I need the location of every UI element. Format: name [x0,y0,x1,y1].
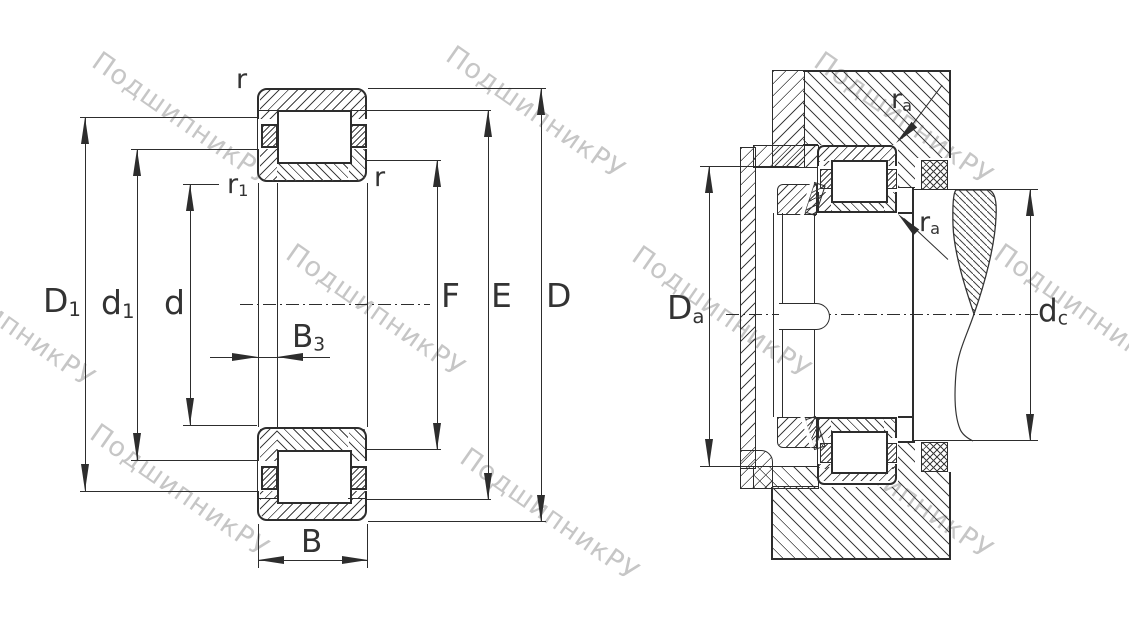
bore-face-line-offset [277,183,279,427]
dim-line-dc [1030,189,1031,441]
dim-label-B: B [301,527,322,560]
shaft-seat-edge [898,416,913,418]
dim-label-Da: Da [667,291,705,327]
ext-line-D-bottom [368,521,546,522]
dim-arrow [484,473,492,500]
ext-line-Da-bottom [700,466,798,467]
flange-edge [348,498,366,499]
bore-face-line [773,213,775,417]
cover-wall [740,147,756,469]
roller [831,160,888,203]
cage-section [350,124,367,148]
flange-edge [259,498,277,499]
radius-label-ra-top: ra [891,86,912,114]
shaft-section-hatch [953,190,996,314]
dim-arrow [81,117,89,144]
dim-label-dc: dc [1038,296,1068,329]
dim-arrow [1026,189,1034,216]
ext-line-dc-bottom [913,440,1038,441]
dim-line-d1 [137,149,138,460]
dim-label-D1: D1 [43,284,81,320]
dim-arrow [186,184,194,211]
ext-line-D-top [368,88,546,89]
housing-bottom-edge [772,558,951,560]
outer-ring-hatch [819,147,896,161]
shaft-end-feature [779,303,830,330]
dim-label-d1: d1 [101,286,135,322]
housing-top-edge [803,70,951,72]
watermark: ПодшипникРУ [454,442,644,588]
dim-label-D: D [546,279,571,315]
ext-line-d1-top [131,149,257,150]
dim-arrow [705,439,713,466]
ext-line-d-bottom [183,425,257,426]
cage-section [261,124,278,148]
shaft-break-section [945,183,1003,445]
cage-section [261,466,278,490]
outer-ring-top-hatch [260,90,365,111]
dim-arrow [133,433,141,460]
dim-arrow [705,166,713,193]
roller [831,431,888,474]
dim-arrow [433,423,441,450]
radius-label-r1: r1 [227,171,248,199]
radius-label-r-side: r [374,164,385,192]
dim-label-E: E [491,279,512,315]
dim-arrow [433,160,441,187]
watermark: ПодшипникРУ [440,40,630,186]
dim-label-B3: B3 [292,322,325,355]
dim-label-F: F [441,279,460,315]
ext-line-D1-top [80,117,257,118]
leader-arrow [895,211,919,235]
dim-arrow [81,464,89,491]
bore-face-line [258,183,260,427]
dim-arrow [258,556,284,564]
housing-bore-edge [772,486,818,488]
roller [277,450,352,504]
cage-section [350,466,367,490]
inner-ring-bottom-hatch [277,429,348,450]
snap-ring [921,160,948,190]
inner-ring-hatch [831,419,884,431]
dim-arrow [537,88,545,115]
center-line-left [240,304,430,305]
flange-edge [259,110,277,111]
radius-label-ra-bottom: ra [919,209,940,237]
dim-label-d: d [164,286,185,322]
ext-line-d1-bottom [131,460,257,461]
dim-line-d [190,184,191,425]
dim-arrow [1026,414,1034,441]
dim-arrow [537,495,545,522]
dim-line-E [488,110,489,500]
dim-line-D [541,88,542,522]
ext-line-D1-bottom [80,491,257,492]
dim-arrow [186,398,194,425]
dim-arrow [133,149,141,176]
shaft-break-line [955,314,974,441]
ext-line-E-bottom [348,499,491,500]
flange-edge [348,110,366,111]
ext-line-Da-top [700,166,798,167]
dim-line-D1 [85,117,86,491]
dim-line-B3 [210,357,330,358]
dim-line-Da [709,166,710,466]
snap-ring [921,442,948,472]
radius-label-r-top: r [236,66,247,94]
roller [277,110,352,164]
dim-arrow [342,556,368,564]
dim-arrow [484,110,492,137]
ext-line-E-top [348,110,491,111]
bore-face-line-right [367,183,369,427]
ext-line-dc-top [913,189,1038,190]
housing-left-edge [771,487,773,560]
bearing-drawing: ПодшипникРУ ПодшипникРУ ПодшипникРУ Подш… [0,0,1129,632]
dim-line-F [437,160,438,450]
dim-arrow [232,353,258,361]
